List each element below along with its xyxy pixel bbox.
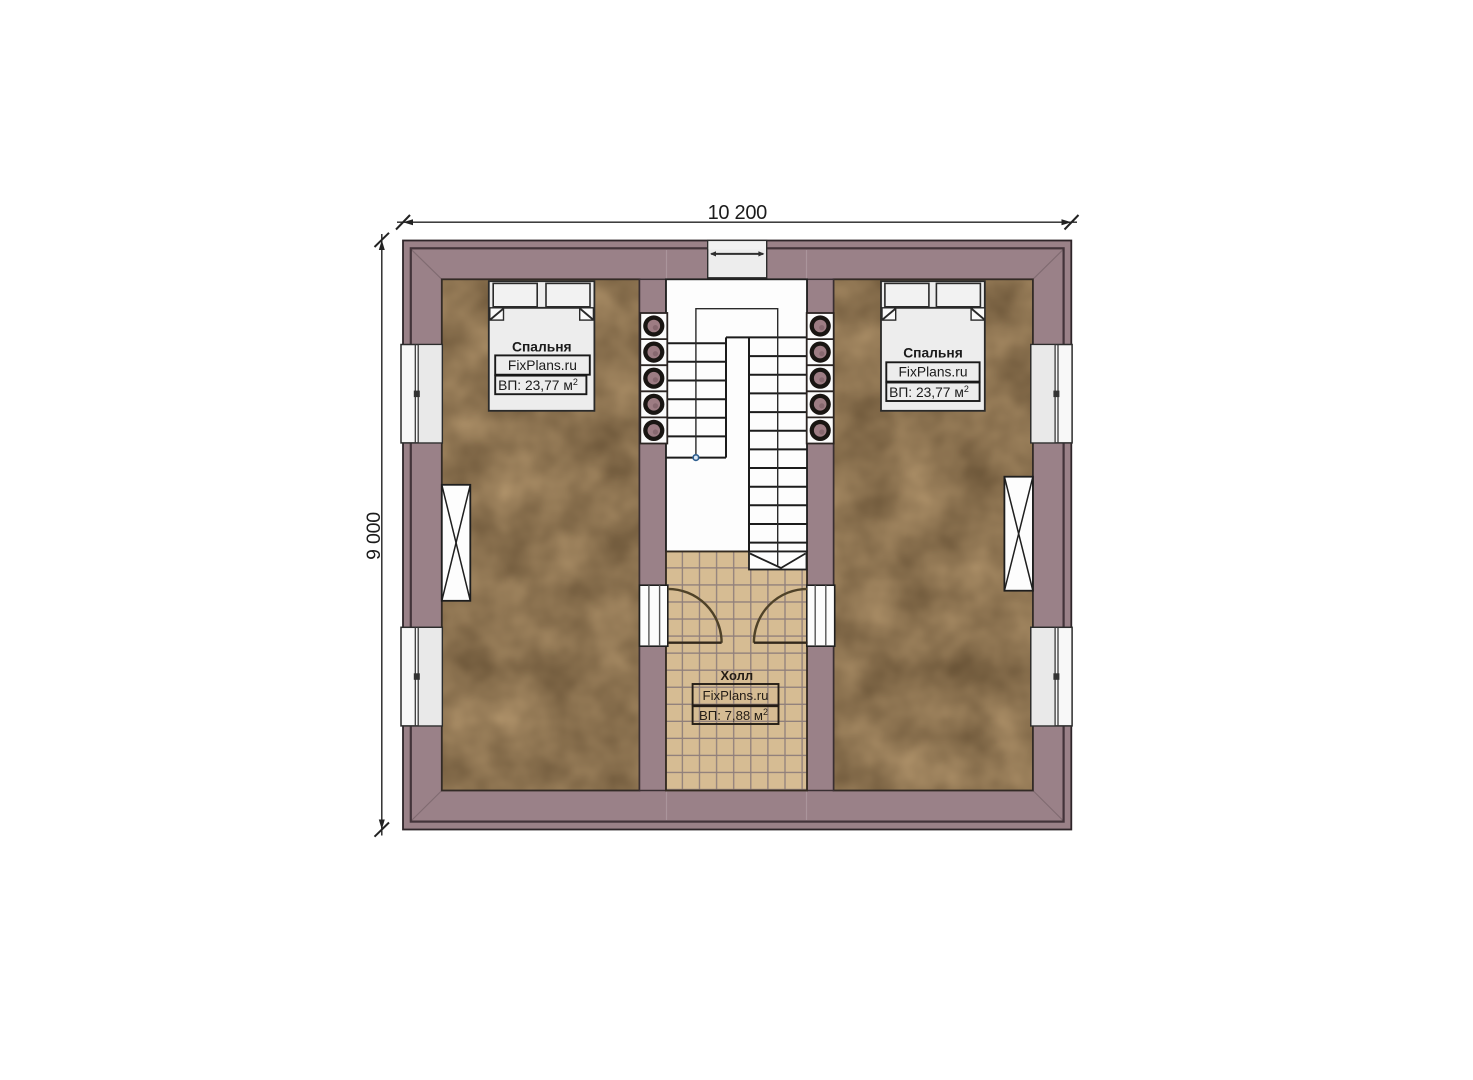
svg-text:FixPlans.ru: FixPlans.ru xyxy=(898,365,967,380)
svg-text:Холл: Холл xyxy=(720,668,753,683)
svg-text:FixPlans.ru: FixPlans.ru xyxy=(703,688,769,703)
svg-text:ВП: 23,77 м2: ВП: 23,77 м2 xyxy=(498,377,578,393)
svg-text:ВП: 23,77 м2: ВП: 23,77 м2 xyxy=(889,384,969,400)
svg-text:Спальня: Спальня xyxy=(903,346,963,361)
svg-text:9 000: 9 000 xyxy=(363,512,385,560)
svg-text:FixPlans.ru: FixPlans.ru xyxy=(508,358,577,373)
svg-text:Спальня: Спальня xyxy=(512,340,572,355)
svg-text:ВП: 7,88 м2: ВП: 7,88 м2 xyxy=(699,707,768,723)
svg-text:10 200: 10 200 xyxy=(708,202,768,224)
